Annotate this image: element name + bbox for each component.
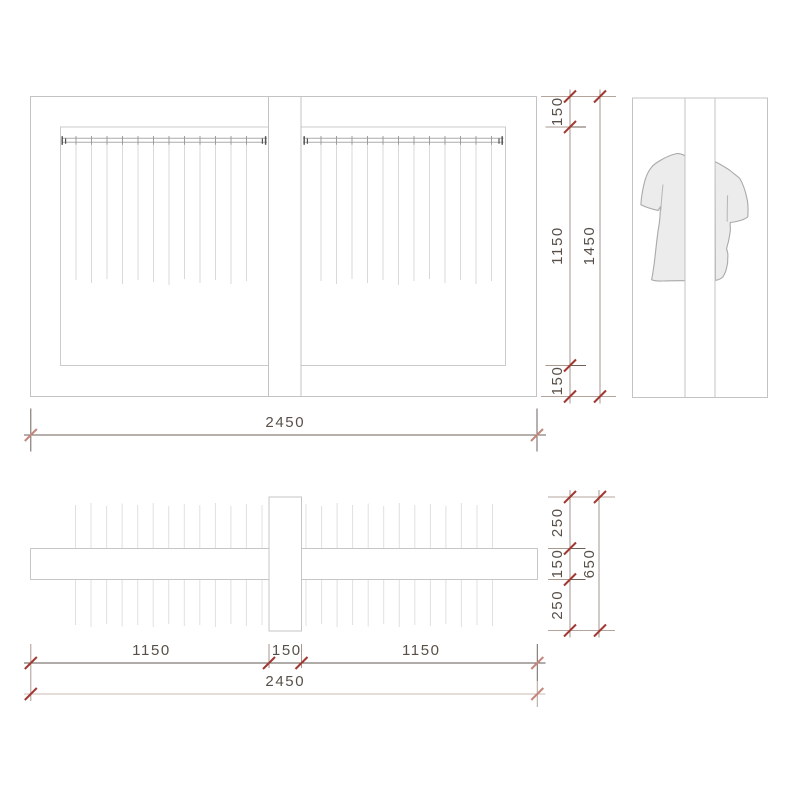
svg-text:150: 150 bbox=[272, 642, 302, 659]
svg-text:250: 250 bbox=[549, 590, 566, 620]
svg-text:1150: 1150 bbox=[549, 226, 566, 265]
svg-text:650: 650 bbox=[581, 549, 598, 579]
svg-text:1450: 1450 bbox=[581, 226, 598, 266]
svg-text:2450: 2450 bbox=[265, 673, 305, 690]
svg-text:1150: 1150 bbox=[402, 642, 441, 659]
svg-text:150: 150 bbox=[549, 549, 566, 579]
svg-text:150: 150 bbox=[549, 96, 566, 126]
svg-text:250: 250 bbox=[549, 507, 566, 537]
svg-text:150: 150 bbox=[549, 366, 566, 396]
svg-text:1150: 1150 bbox=[132, 642, 171, 659]
svg-text:2450: 2450 bbox=[265, 414, 305, 431]
